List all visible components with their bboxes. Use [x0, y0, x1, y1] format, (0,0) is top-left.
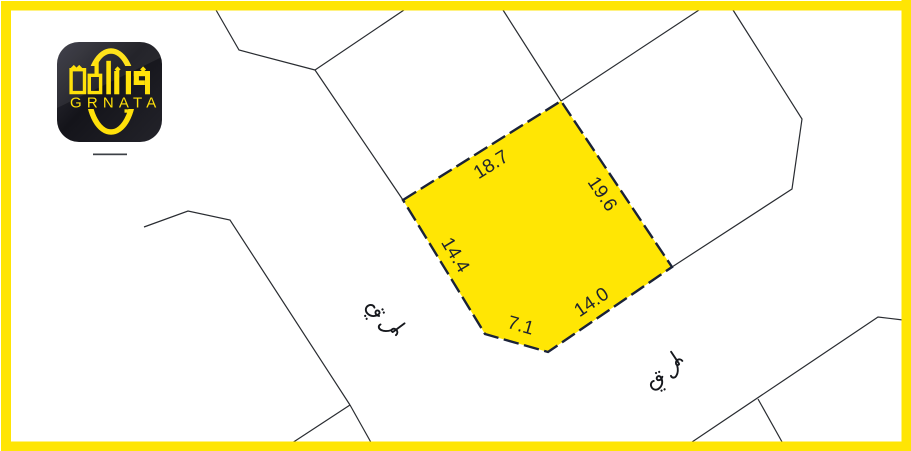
svg-text:GRNATA: GRNATA — [70, 95, 161, 112]
